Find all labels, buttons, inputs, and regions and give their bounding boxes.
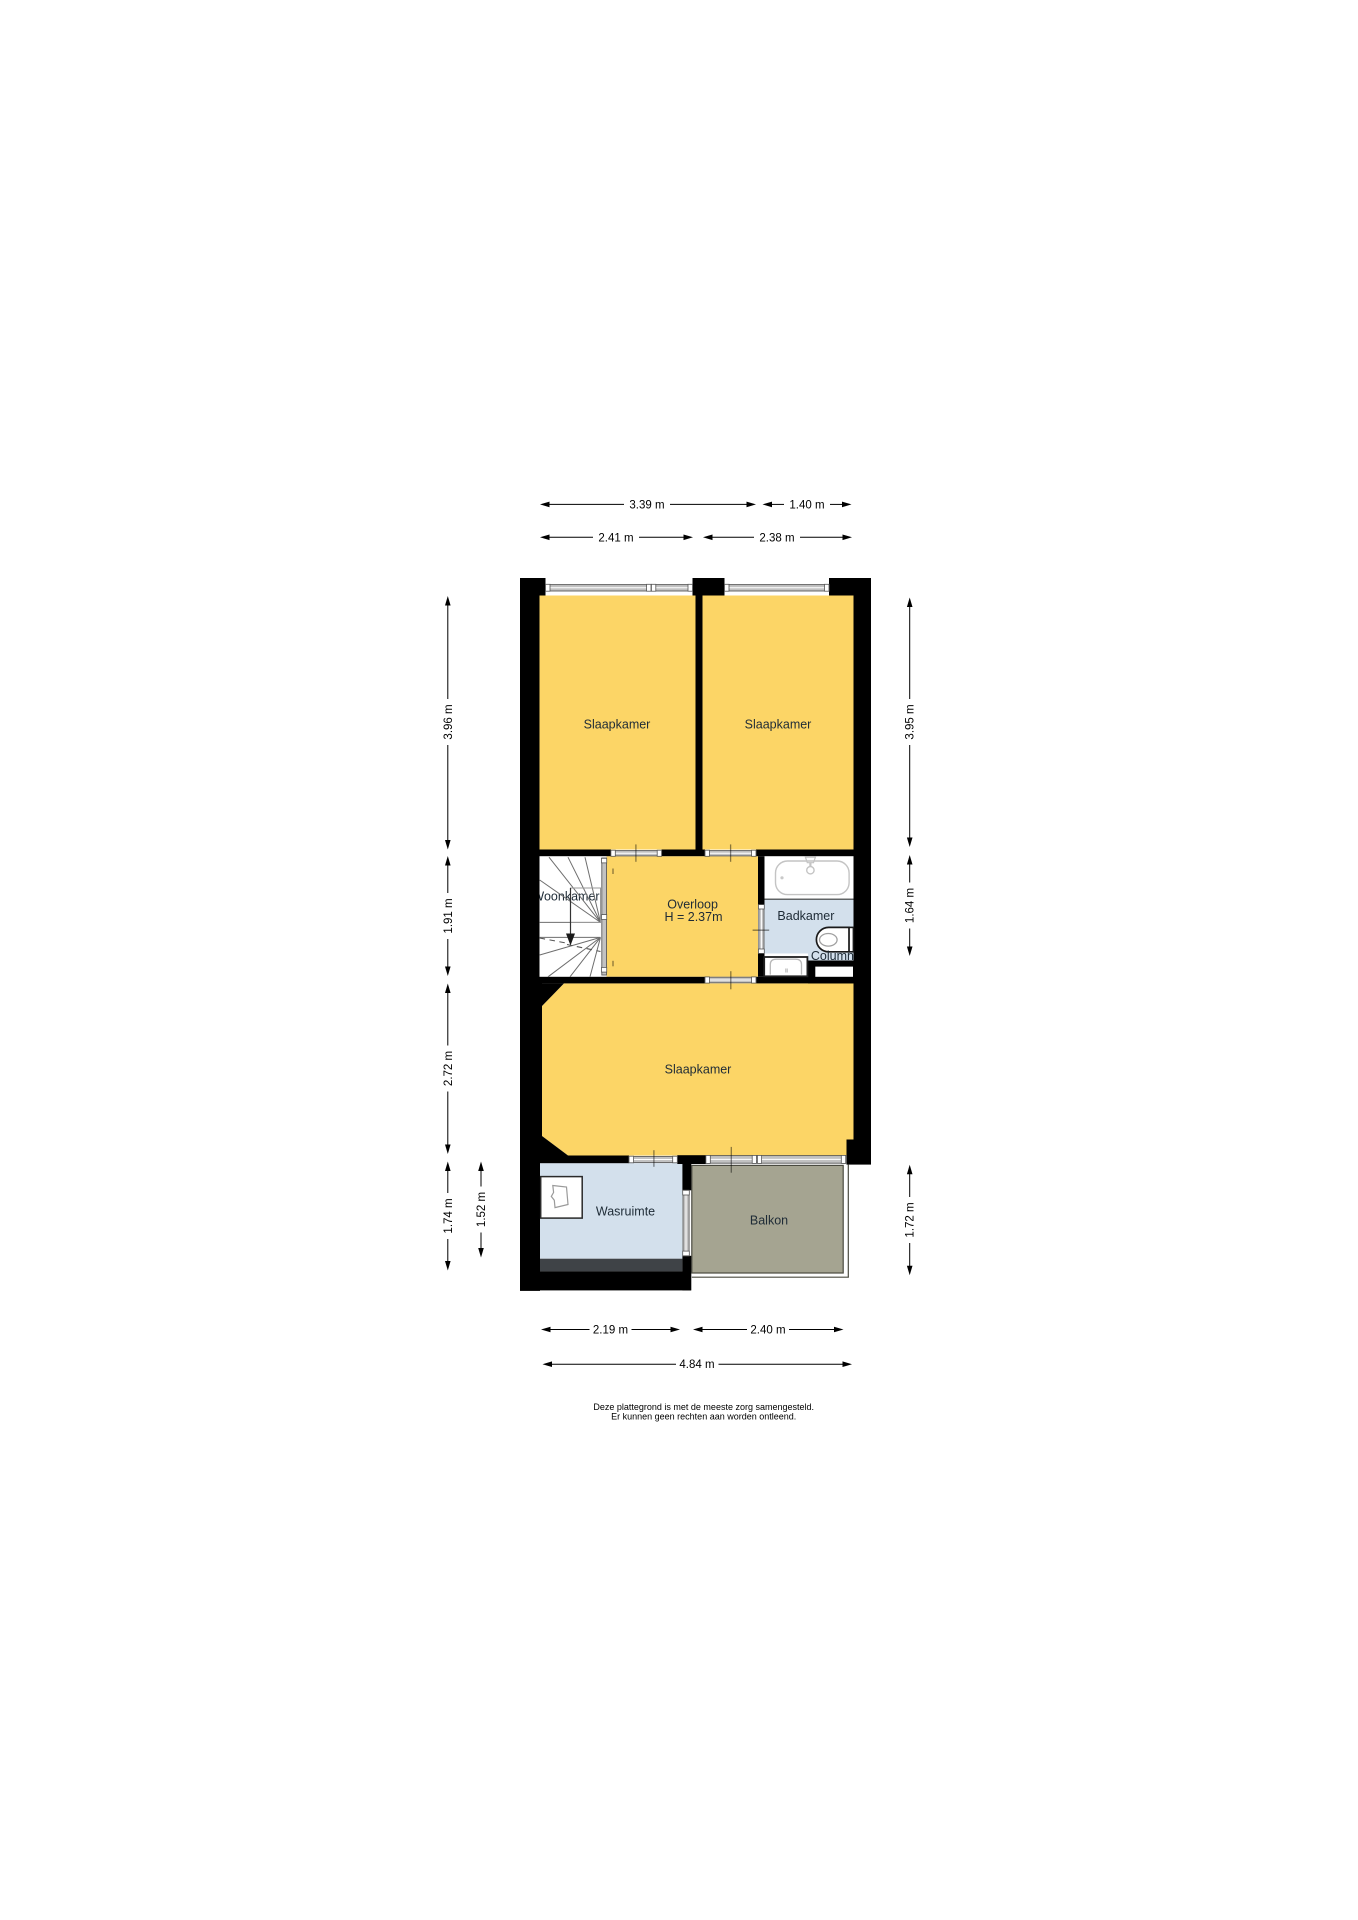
svg-text:Balkon: Balkon: [750, 1213, 788, 1227]
svg-text:H = 2.37m: H = 2.37m: [664, 910, 722, 924]
svg-text:1.64 m: 1.64 m: [905, 888, 917, 923]
svg-text:Slaapkamer: Slaapkamer: [665, 1063, 732, 1077]
svg-text:Slaapkamer: Slaapkamer: [584, 717, 651, 731]
svg-text:Badkamer: Badkamer: [777, 909, 834, 923]
svg-text:1.40 m: 1.40 m: [789, 499, 824, 511]
svg-text:2.38 m: 2.38 m: [759, 532, 794, 544]
svg-text:Wasruimte: Wasruimte: [596, 1205, 655, 1219]
svg-text:3.96 m: 3.96 m: [443, 704, 455, 739]
svg-text:1.91 m: 1.91 m: [443, 898, 455, 933]
svg-text:2.72 m: 2.72 m: [443, 1051, 455, 1086]
svg-text:1.52 m: 1.52 m: [476, 1192, 488, 1227]
svg-text:Column: Column: [811, 949, 854, 963]
svg-text:1.74 m: 1.74 m: [443, 1198, 455, 1233]
svg-text:2.19 m: 2.19 m: [593, 1325, 628, 1337]
svg-text:2.40 m: 2.40 m: [750, 1325, 785, 1337]
svg-text:Slaapkamer: Slaapkamer: [745, 717, 812, 731]
svg-text:3.95 m: 3.95 m: [905, 704, 917, 739]
svg-text:Er kunnen geen rechten aan wor: Er kunnen geen rechten aan worden ontlee…: [611, 1411, 796, 1421]
svg-text:2.41 m: 2.41 m: [598, 532, 633, 544]
svg-text:1.72 m: 1.72 m: [905, 1202, 917, 1237]
svg-text:4.84 m: 4.84 m: [679, 1359, 714, 1371]
svg-text:Woonkamer: Woonkamer: [532, 890, 599, 904]
svg-text:3.39 m: 3.39 m: [629, 499, 664, 511]
